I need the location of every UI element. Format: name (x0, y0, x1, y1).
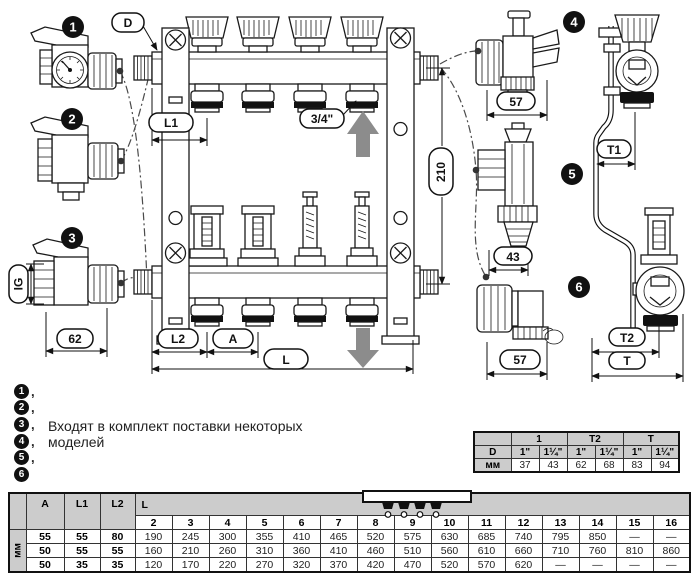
legend-note-line1: Входят в комплект поставки некоторых (48, 418, 303, 434)
bt-r3-v: — (616, 558, 653, 573)
bt-header-a: A (26, 493, 64, 530)
bt-r3-l2: 35 (100, 558, 135, 573)
bt-r3-v: — (579, 558, 616, 573)
dim-label-a: A (213, 329, 253, 348)
dim-label-d-text: D (124, 16, 133, 30)
rt-d-v4: 1¼" (595, 446, 623, 459)
dim-label-l-text: L (282, 353, 289, 367)
callout-2-number: 2 (68, 112, 75, 127)
drain-valve-5 (473, 123, 537, 246)
mixing-valve-top (615, 15, 659, 108)
rt-d-v3: 1" (567, 446, 595, 459)
bt-r3-a: 50 (26, 558, 64, 573)
dim-label-ig-text: IG (12, 278, 26, 291)
dim-label-43: 43 (494, 247, 532, 265)
bt-r2-v: 660 (505, 544, 542, 558)
legend-badge-5: 5 (14, 450, 29, 465)
flow-meter-valve-bottom (633, 208, 684, 331)
bt-r2-v: 410 (320, 544, 357, 558)
callout-5: 5 (561, 163, 583, 185)
flow-arrow-down-icon (347, 328, 379, 368)
dim-label-a-text: A (229, 332, 238, 346)
callout-4-number: 4 (570, 15, 578, 30)
bt-r1-v: 465 (320, 530, 357, 544)
dim-label-57-bottom: 57 (500, 350, 540, 369)
callout-4: 4 (563, 11, 585, 33)
dim-label-three-quarter: 3/4" (300, 109, 344, 128)
bt-r2-v: 310 (246, 544, 283, 558)
bt-r1-l2: 80 (100, 530, 135, 544)
rt-mm-v2: 43 (539, 459, 567, 473)
legend-badge-6: 6 (14, 467, 29, 482)
bt-unit-label: мм (12, 543, 23, 559)
rt-mm-label: мм (474, 459, 511, 473)
dim-label-ig: IG (9, 265, 28, 303)
legend-item-2: 2 , (14, 400, 35, 417)
bt-r1-v: 190 (135, 530, 172, 544)
bt-r3-v: 170 (172, 558, 209, 573)
bt-r1-v: 740 (505, 530, 542, 544)
rt-mm-v1: 37 (511, 459, 539, 473)
rt-d-v1: 1" (511, 446, 539, 459)
dim-label-l: L (264, 349, 308, 369)
bt-r1-v: 630 (431, 530, 468, 544)
table-row: 50 55 55 160 210 260 310 360 410 460 510… (9, 544, 690, 558)
rt-d-v5: 1" (623, 446, 651, 459)
bt-r2-v: 710 (542, 544, 579, 558)
callout-6: 6 (568, 276, 590, 298)
dim-label-l2: L2 (158, 329, 198, 348)
legend-note: Входят в комплект поставки некоторых мод… (48, 418, 303, 450)
bt-count-16: 16 (653, 516, 690, 530)
rt-d-v6: 1¼" (651, 446, 679, 459)
callout-1: 1 (62, 16, 84, 38)
legend-item-6: 6 (14, 466, 35, 483)
table-row: 50 35 35 120 170 220 270 320 370 420 470… (9, 558, 690, 573)
bt-unit-cell: мм (9, 530, 26, 573)
table-row: мм 55 55 80 190 245 300 355 410 465 520 … (9, 530, 690, 544)
callout-6-number: 6 (575, 280, 582, 295)
bt-r2-v: 610 (468, 544, 505, 558)
dim-label-t2-text: T2 (620, 331, 634, 345)
bt-r3-v: 120 (135, 558, 172, 573)
bt-count-14: 14 (579, 516, 616, 530)
bt-r1-v: 685 (468, 530, 505, 544)
bt-r3-v: — (653, 558, 690, 573)
bt-r1-l1: 55 (64, 530, 100, 544)
rt-group-t2: T2 (567, 432, 623, 446)
end-cap-valve-6 (477, 274, 563, 344)
bt-count-5: 5 (246, 516, 283, 530)
bt-r1-v: 520 (357, 530, 394, 544)
legend-comma-5: , (31, 450, 35, 465)
dim-label-l2-text: L2 (171, 332, 185, 346)
dim-label-57-top: 57 (497, 92, 535, 110)
legend: 1 , 2 , 3 , 4 , 5 , 6 (14, 383, 35, 483)
dim-label-62-text: 62 (68, 332, 82, 346)
bt-r1-v: — (616, 530, 653, 544)
shutoff-valve-4 (475, 11, 559, 95)
rt-d-label: D (474, 446, 511, 459)
bt-r3-v: 620 (505, 558, 542, 573)
bt-r1-v: — (653, 530, 690, 544)
rt-mm-v6: 94 (651, 459, 679, 473)
legend-comma-4: , (31, 434, 35, 449)
bt-r1-v: 245 (172, 530, 209, 544)
mounting-bracket-left (157, 28, 194, 344)
bt-r3-v: 370 (320, 558, 357, 573)
bt-r2-l2: 55 (100, 544, 135, 558)
legend-note-line2: моделей (48, 434, 104, 450)
bt-r2-l1: 55 (64, 544, 100, 558)
bt-r3-v: 270 (246, 558, 283, 573)
bt-r1-v: 355 (246, 530, 283, 544)
bt-r1-v: 850 (579, 530, 616, 544)
legend-comma-1: , (31, 384, 35, 399)
bt-r3-v: 470 (394, 558, 431, 573)
legend-badge-1: 1 (14, 384, 29, 399)
connection-size-table: 1 T2 T D 1" 1¼" 1" 1¼" 1" 1¼" мм 37 43 6… (473, 431, 680, 473)
dim-label-t1-text: T1 (607, 143, 621, 157)
dim-label-210-text: 210 (434, 162, 448, 182)
bt-r2-v: 560 (431, 544, 468, 558)
dim-label-210: 210 (429, 148, 453, 195)
bt-r1-v: 575 (394, 530, 431, 544)
bt-r3-v: 520 (431, 558, 468, 573)
callout-3-number: 3 (68, 231, 75, 246)
callout-5-number: 5 (568, 167, 575, 182)
bt-r1-v: 300 (209, 530, 246, 544)
bt-r3-v: 320 (283, 558, 320, 573)
bt-r2-v: 160 (135, 544, 172, 558)
dim-label-t: T (609, 352, 645, 369)
technical-drawing: D L1 3/4" 210 L2 A L 57 43 57 T1 T2 (0, 0, 700, 390)
bt-r3-v: 570 (468, 558, 505, 573)
ball-valve-3 (33, 239, 124, 305)
bt-count-2: 2 (135, 516, 172, 530)
rt-group-1: 1 (511, 432, 567, 446)
bt-count-3: 3 (172, 516, 209, 530)
bt-count-13: 13 (542, 516, 579, 530)
rt-d-v2: 1¼" (539, 446, 567, 459)
dim-label-t1: T1 (597, 140, 631, 158)
mounting-bracket-right (382, 28, 419, 344)
dim-label-t-text: T (623, 354, 631, 368)
bt-r3-v: 420 (357, 558, 394, 573)
legend-item-4: 4 , (14, 433, 35, 450)
page: D L1 3/4" 210 L2 A L 57 43 57 T1 T2 (0, 0, 700, 585)
bt-r2-v: 760 (579, 544, 616, 558)
bt-corner-cell (9, 493, 26, 530)
dim-label-d: D (112, 13, 144, 32)
legend-badge-2: 2 (14, 400, 29, 415)
bt-r2-v: 510 (394, 544, 431, 558)
thermostatic-knobs (186, 17, 383, 52)
dim-label-43-text: 43 (506, 250, 520, 264)
bt-count-7: 7 (320, 516, 357, 530)
bt-r3-l1: 35 (64, 558, 100, 573)
rt-corner-cell (474, 432, 511, 446)
bt-count-12: 12 (505, 516, 542, 530)
legend-item-3: 3 , (14, 416, 35, 433)
ball-valve-2 (31, 117, 124, 200)
legend-badge-4: 4 (14, 434, 29, 449)
bt-r1-v: 795 (542, 530, 579, 544)
bt-r2-v: 260 (209, 544, 246, 558)
dim-label-57-bottom-text: 57 (513, 353, 527, 367)
dim-label-57-top-text: 57 (509, 95, 523, 109)
bt-r2-v: 860 (653, 544, 690, 558)
legend-item-5: 5 , (14, 449, 35, 466)
legend-item-1: 1 , (14, 383, 35, 400)
rt-mm-v4: 68 (595, 459, 623, 473)
bt-r2-a: 50 (26, 544, 64, 558)
bt-r2-v: 460 (357, 544, 394, 558)
bt-header-l1: L1 (64, 493, 100, 530)
dim-label-three-quarter-text: 3/4" (311, 112, 333, 126)
flow-arrow-up-icon (347, 111, 379, 157)
manifold-pictogram-icon (360, 488, 476, 524)
bottom-outlets (191, 298, 378, 326)
callout-2: 2 (61, 108, 83, 130)
bt-header-l2: L2 (100, 493, 135, 530)
bt-r2-v: 210 (172, 544, 209, 558)
bt-r3-v: — (542, 558, 579, 573)
length-dimension-table: A L1 L2 L 2 3 4 5 6 7 8 9 10 11 12 13 14… (8, 492, 691, 573)
bt-count-6: 6 (283, 516, 320, 530)
callout-1-number: 1 (69, 20, 76, 35)
rt-group-t: T (623, 432, 679, 446)
flow-meters (187, 192, 377, 266)
dim-label-t2: T2 (609, 328, 645, 346)
bt-r2-v: 360 (283, 544, 320, 558)
rt-mm-v5: 83 (623, 459, 651, 473)
legend-comma-2: , (31, 400, 35, 415)
legend-badge-3: 3 (14, 417, 29, 432)
dim-label-62: 62 (57, 329, 93, 348)
bt-r2-v: 810 (616, 544, 653, 558)
dim-label-l1-text: L1 (164, 116, 178, 130)
callout-3: 3 (61, 227, 83, 249)
dim-label-l1: L1 (149, 113, 193, 132)
bt-count-15: 15 (616, 516, 653, 530)
bt-count-4: 4 (209, 516, 246, 530)
legend-comma-3: , (31, 417, 35, 432)
bt-r1-a: 55 (26, 530, 64, 544)
bt-r1-v: 410 (283, 530, 320, 544)
bt-r3-v: 220 (209, 558, 246, 573)
rt-mm-v3: 62 (567, 459, 595, 473)
